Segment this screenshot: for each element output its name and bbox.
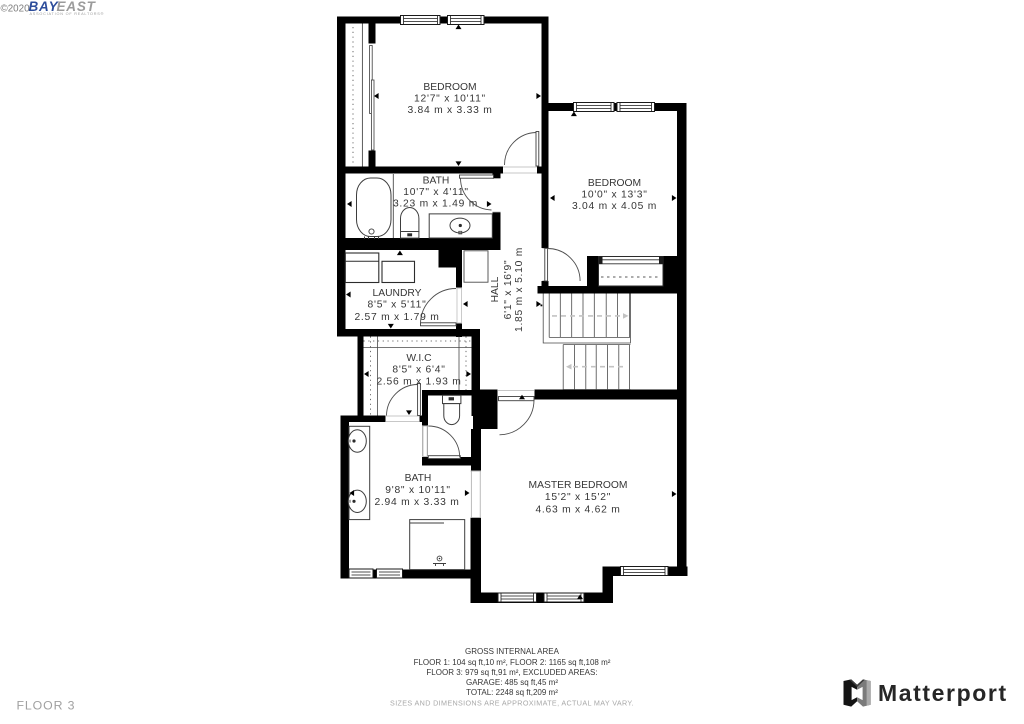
svg-text:BEDROOM: BEDROOM	[588, 178, 641, 189]
svg-text:Matterport: Matterport	[878, 680, 1008, 706]
svg-text:3.84 m x 3.33 m: 3.84 m x 3.33 m	[407, 105, 492, 116]
svg-text:4.63 m x 4.62 m: 4.63 m x 4.62 m	[535, 505, 620, 516]
svg-text:FLOOR 3: 979 sq ft,91 m², EXCL: FLOOR 3: 979 sq ft,91 m², EXCLUDED AREAS…	[426, 668, 597, 677]
svg-text:FLOOR 1: 104 sq ft,10 m², FLOO: FLOOR 1: 104 sq ft,10 m², FLOOR 2: 1165 …	[414, 658, 611, 667]
svg-text:FLOOR 3: FLOOR 3	[17, 699, 76, 713]
svg-text:BEDROOM: BEDROOM	[423, 82, 476, 93]
svg-text:10'0" x 13'3": 10'0" x 13'3"	[581, 190, 647, 201]
svg-text:10'7" x 4'11": 10'7" x 4'11"	[403, 187, 468, 198]
svg-text:8'5" x 6'4": 8'5" x 6'4"	[392, 365, 445, 376]
svg-text:W.I.C: W.I.C	[406, 353, 432, 364]
svg-text:TOTAL: 2248 sq ft,209 m²: TOTAL: 2248 sq ft,209 m²	[466, 688, 558, 697]
svg-text:2.57 m x 1.79 m: 2.57 m x 1.79 m	[354, 312, 439, 323]
svg-text:2.94 m x 3.33 m: 2.94 m x 3.33 m	[374, 497, 459, 508]
svg-text:GROSS INTERNAL AREA: GROSS INTERNAL AREA	[465, 647, 560, 656]
svg-text:BATH: BATH	[423, 176, 450, 187]
svg-text:3.04 m x 4.05 m: 3.04 m x 4.05 m	[572, 201, 657, 212]
svg-text:15'2" x 15'2": 15'2" x 15'2"	[545, 492, 611, 503]
svg-text:3.23 m x 1.49 m: 3.23 m x 1.49 m	[393, 199, 478, 210]
svg-text:ASSOCIATION OF REALTORS®: ASSOCIATION OF REALTORS®	[30, 12, 105, 16]
svg-text:2.56 m x 1.93 m: 2.56 m x 1.93 m	[376, 377, 461, 388]
svg-text:GARAGE: 485 sq ft,45 m²: GARAGE: 485 sq ft,45 m²	[466, 678, 558, 687]
svg-text:8'5" x 5'11": 8'5" x 5'11"	[368, 300, 427, 311]
svg-text:SIZES AND DIMENSIONS ARE APPRO: SIZES AND DIMENSIONS ARE APPROXIMATE, AC…	[390, 698, 634, 707]
svg-text:HALL: HALL	[490, 276, 501, 302]
svg-text:MASTER BEDROOM: MASTER BEDROOM	[529, 480, 628, 491]
svg-text:9'8" x 10'11": 9'8" x 10'11"	[385, 485, 450, 496]
svg-text:©2020: ©2020	[1, 4, 31, 15]
svg-text:BATH: BATH	[405, 473, 432, 484]
svg-text:LAUNDRY: LAUNDRY	[372, 288, 421, 299]
svg-text:6'1" x 16'9": 6'1" x 16'9"	[503, 260, 514, 320]
svg-text:1.85 m x 5.10 m: 1.85 m x 5.10 m	[514, 247, 525, 332]
svg-text:12'7" x 10'11": 12'7" x 10'11"	[414, 94, 486, 105]
